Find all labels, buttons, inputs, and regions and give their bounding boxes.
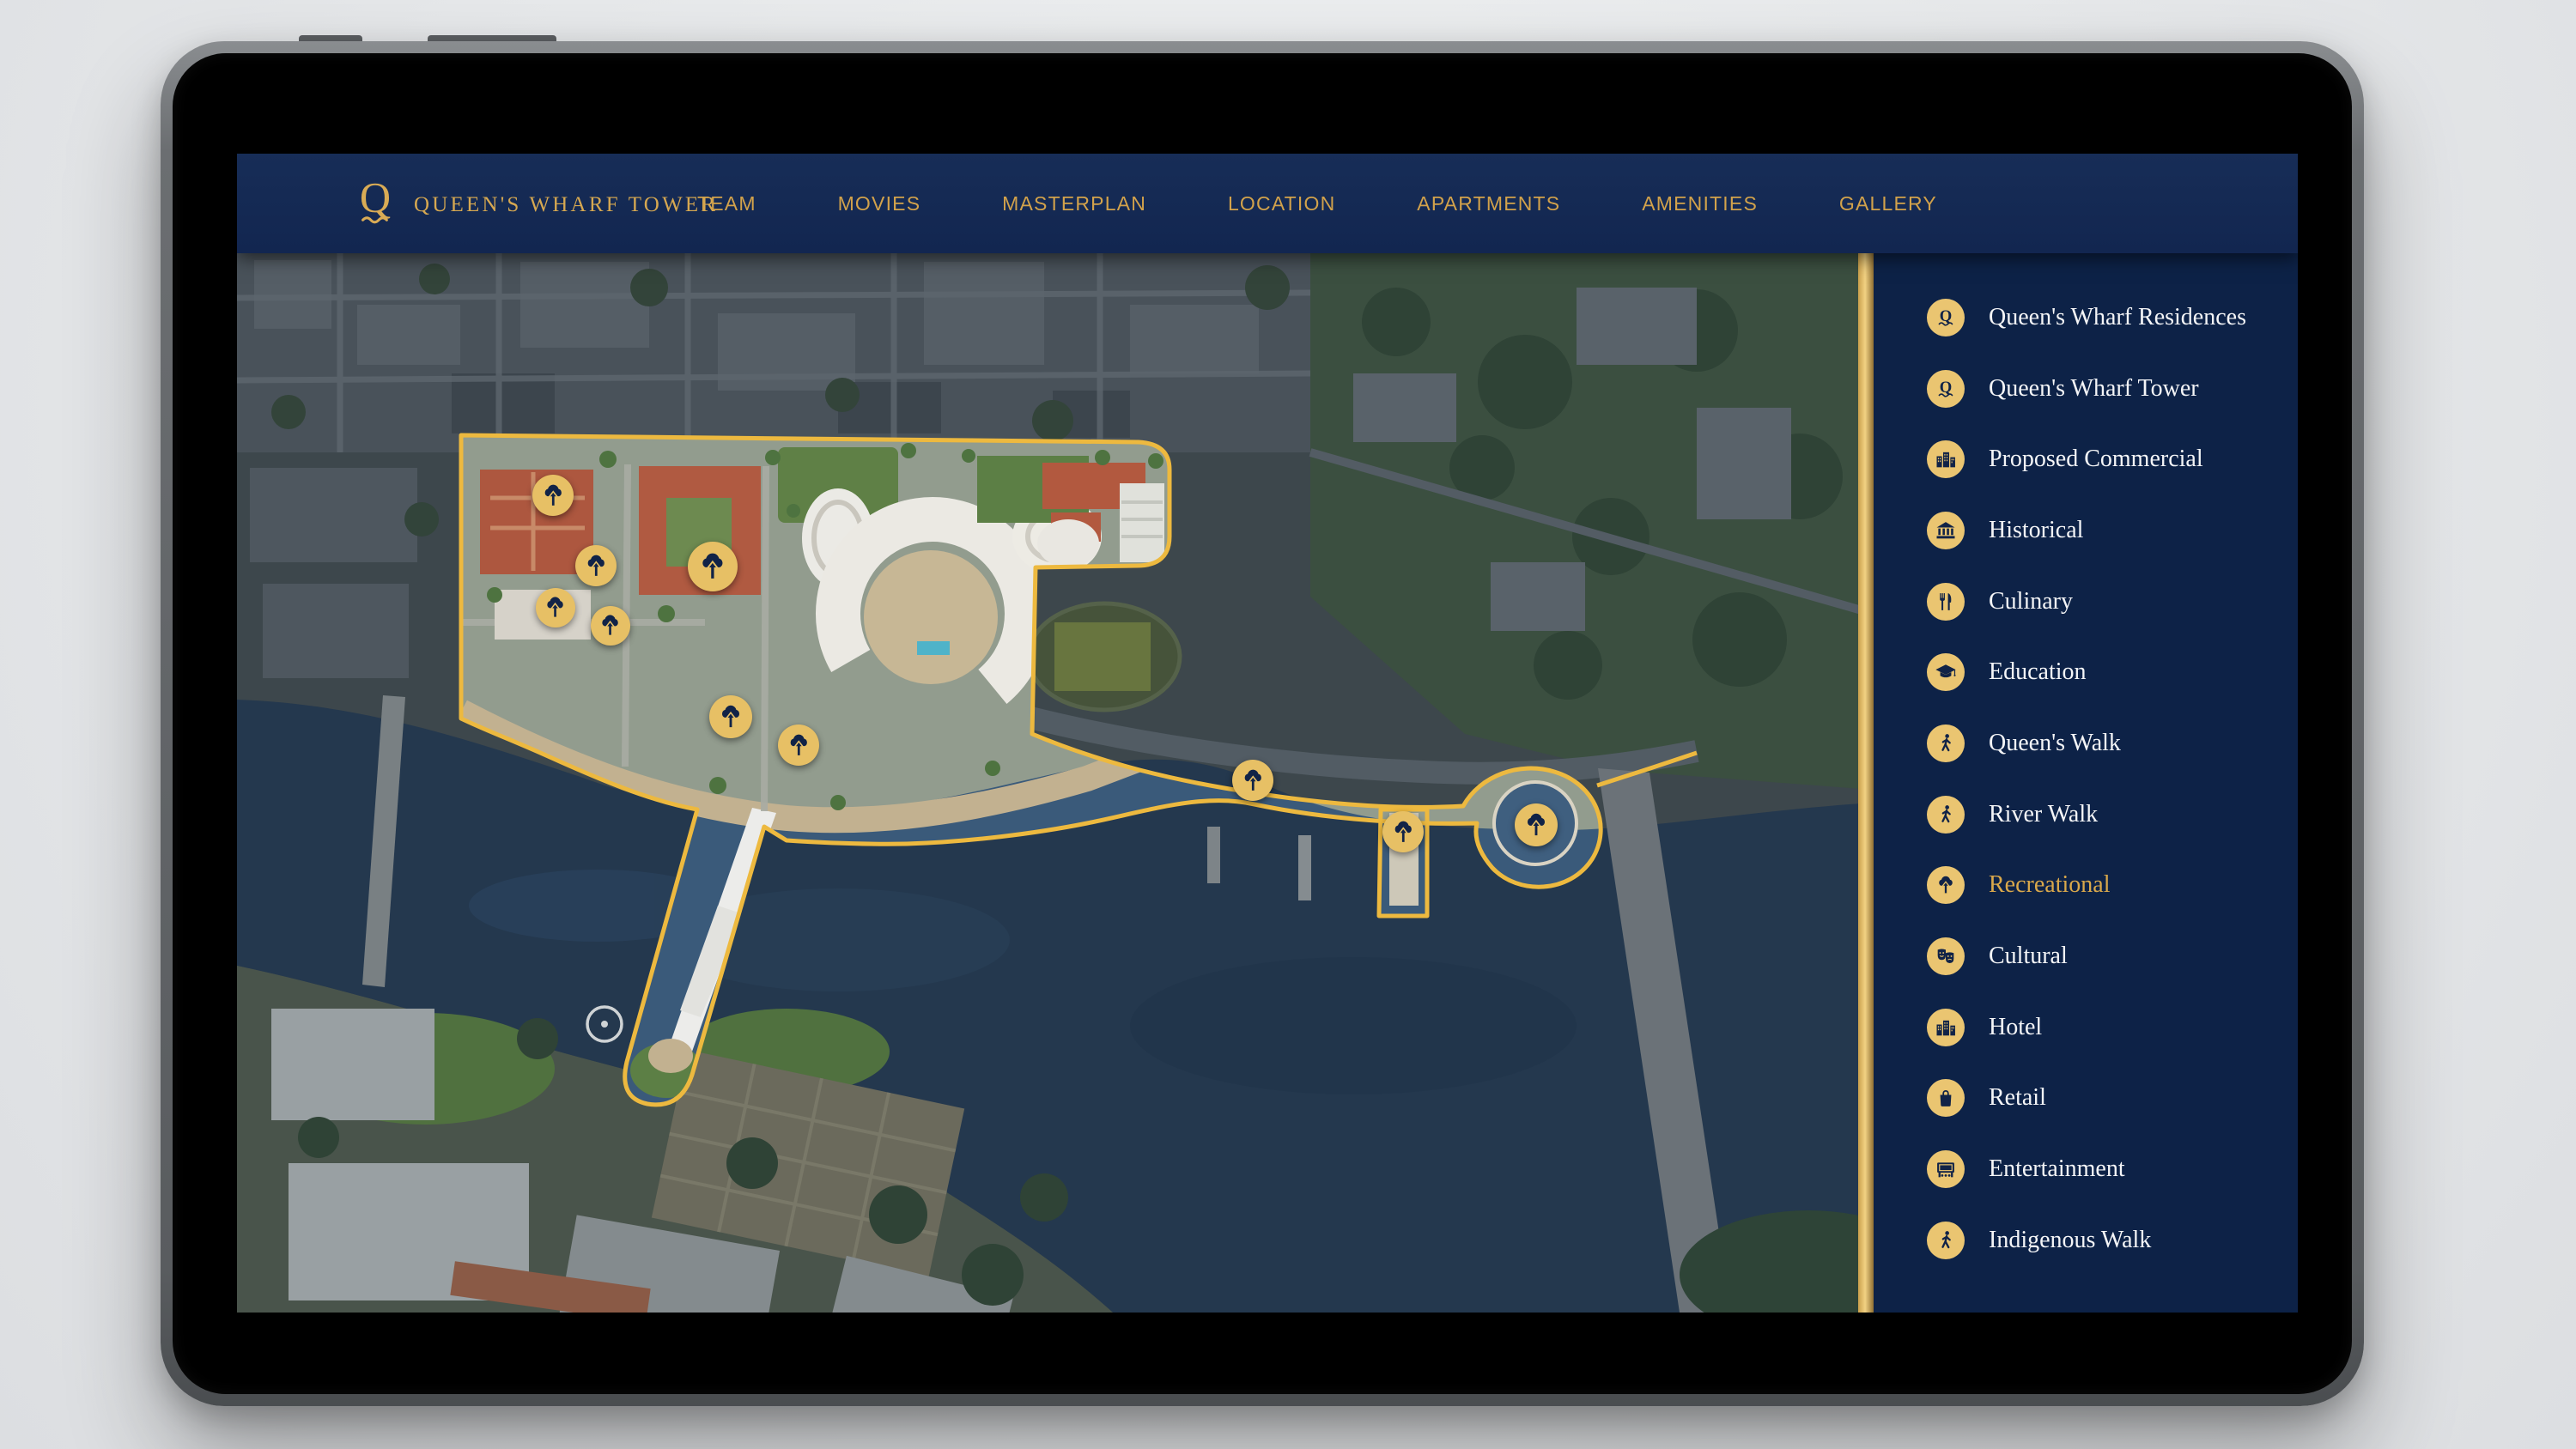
map-marker-recreational[interactable] [536,588,575,627]
walking-person-icon [1927,724,1965,762]
legend-item-label: Queen's Walk [1989,730,2121,757]
cutlery-icon [1927,583,1965,621]
nav-item-movies[interactable]: MOVIES [838,192,921,215]
legend-item-retail[interactable]: Retail [1927,1074,2046,1122]
map-marker-recreational[interactable] [532,475,574,516]
legend-item-label: Entertainment [1989,1155,2125,1183]
legend-item-river-walk[interactable]: River Walk [1927,791,2098,839]
walking-person-icon [1927,796,1965,834]
masterplan-map [237,253,1874,1313]
tree-up-icon [695,549,731,585]
brand-title: QUEEN'S WHARF TOWER [414,190,718,217]
legend-item-indigenous-walk[interactable]: Indigenous Walk [1927,1216,2151,1264]
map-marker-recreational[interactable] [709,695,752,738]
nav-item-masterplan[interactable]: MASTERPLAN [1002,192,1146,215]
tree-up-icon [1521,809,1552,840]
legend-item-label: Education [1989,658,2087,686]
tree-up-icon [581,551,611,581]
q-crest-logo-icon: Q [352,176,398,231]
q-crest-icon [1927,370,1965,408]
map-marker-recreational[interactable] [688,542,738,591]
legend-item-label: Hotel [1989,1014,2042,1041]
map-marker-recreational[interactable] [1515,803,1558,846]
tree-up-icon [784,731,814,761]
legend-item-cultural[interactable]: Cultural [1927,932,2068,980]
legend-item-queens-wharf-residences[interactable]: Queen's Wharf Residences [1927,294,2246,342]
tree-up-icon [538,481,568,511]
legend-item-education[interactable]: Education [1927,648,2087,696]
legend-item-label: Recreational [1989,871,2110,899]
nav-item-location[interactable]: LOCATION [1228,192,1335,215]
legend-item-label: Proposed Commercial [1989,446,2203,473]
map-marker-recreational[interactable] [575,545,617,586]
legend-item-entertainment[interactable]: Entertainment [1927,1145,2125,1193]
theatre-masks-icon [1927,937,1965,975]
screen: Queen's Wharf Residences Queen's Wharf T… [237,154,2298,1313]
map-marker-recreational[interactable] [1382,811,1424,852]
buildings-icon [1927,440,1965,478]
legend-item-label: Historical [1989,517,2083,544]
tree-up-icon [596,611,624,640]
map-marker-recreational[interactable] [778,724,819,766]
svg-text:Q: Q [360,176,391,221]
nav-item-gallery[interactable]: GALLERY [1839,192,1937,215]
nav-item-team[interactable]: TEAM [697,192,756,215]
legend-item-queens-wharf-tower[interactable]: Queen's Wharf Tower [1927,365,2199,413]
legend-item-culinary[interactable]: Culinary [1927,578,2073,626]
legend-item-hotel[interactable]: Hotel [1927,1003,2042,1052]
brand-logo[interactable]: Q QUEEN'S WHARF TOWER [352,154,718,253]
walking-person-icon [1927,1222,1965,1259]
map-marker-recreational[interactable] [591,606,630,646]
legend-item-label: Cultural [1989,943,2068,970]
legend-item-recreational[interactable]: Recreational [1927,861,2110,909]
sidebar-divider-bar [1858,253,1874,1313]
shopping-bag-icon [1927,1079,1965,1117]
aerial-imagery [237,253,1874,1313]
tree-up-icon [541,593,569,621]
legend-item-proposed-commercial[interactable]: Proposed Commercial [1927,435,2203,483]
classical-building-icon [1927,512,1965,549]
legend-item-queens-walk[interactable]: Queen's Walk [1927,719,2121,767]
tree-up-icon [1388,817,1419,847]
graduation-cap-icon [1927,653,1965,691]
tree-up-icon [1238,766,1268,796]
legend-sidebar: Queen's Wharf Residences Queen's Wharf T… [1874,253,2298,1313]
buildings-icon [1927,1009,1965,1046]
tree-up-icon [715,701,746,732]
q-crest-icon [1927,299,1965,336]
legend-item-label: Culinary [1989,588,2073,615]
nav-item-apartments[interactable]: APARTMENTS [1417,192,1560,215]
nav-item-amenities[interactable]: AMENITIES [1642,192,1758,215]
tree-up-icon [1927,866,1965,904]
main-nav: TEAM MOVIES MASTERPLAN LOCATION APARTMEN… [697,154,1937,253]
cinema-marquee-icon [1927,1150,1965,1188]
site-header: Q QUEEN'S WHARF TOWER TEAM MOVIES MASTER… [237,154,2298,253]
tablet-bezel: Queen's Wharf Residences Queen's Wharf T… [173,53,2352,1394]
legend-item-label: Retail [1989,1084,2046,1112]
legend-item-label: Queen's Wharf Tower [1989,375,2199,403]
legend-item-historical[interactable]: Historical [1927,506,2083,555]
legend-item-label: Indigenous Walk [1989,1227,2151,1254]
map-marker-recreational[interactable] [1232,760,1273,801]
legend-item-label: Queen's Wharf Residences [1989,304,2246,331]
tablet-frame: Queen's Wharf Residences Queen's Wharf T… [161,41,2364,1406]
legend-item-label: River Walk [1989,801,2098,828]
